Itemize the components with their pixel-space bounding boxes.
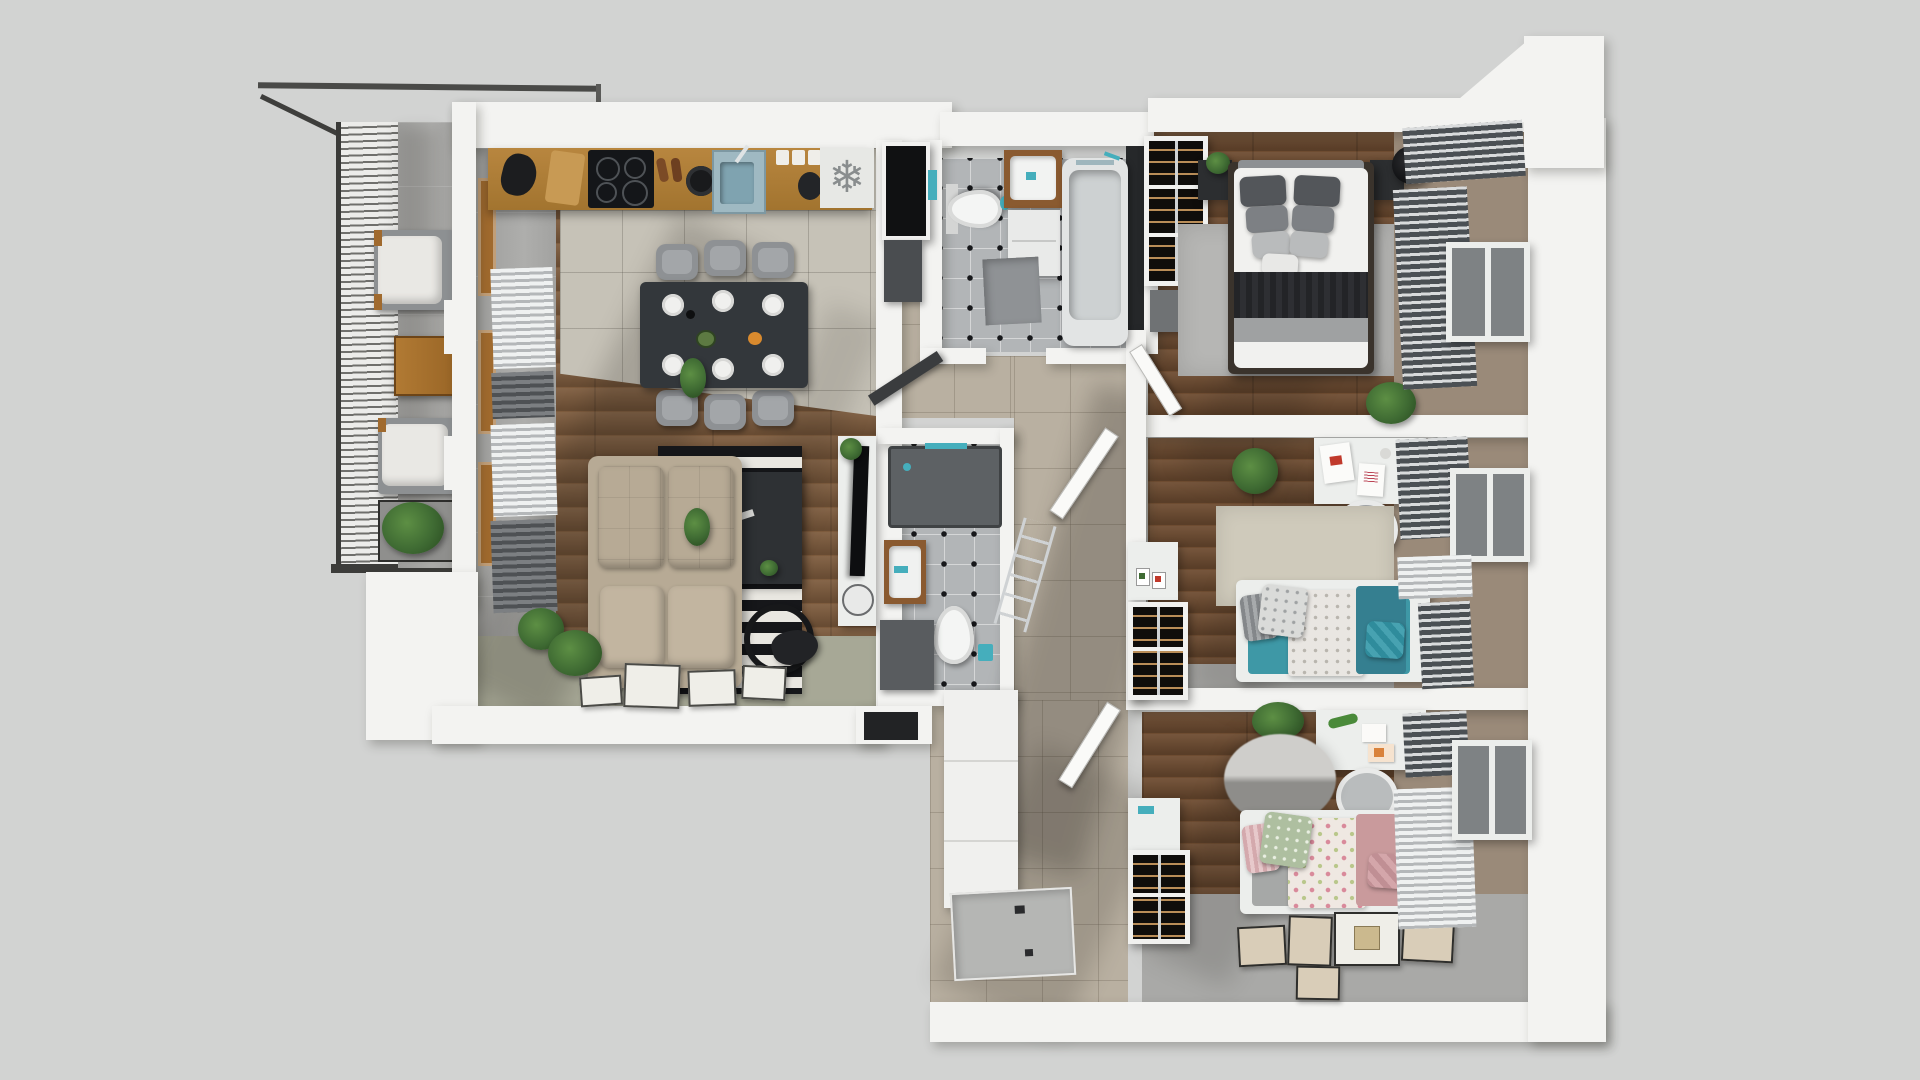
wall-right-band <box>1528 118 1606 1042</box>
wall-shower-top <box>878 428 1014 444</box>
blanket-gray <box>1234 318 1368 342</box>
console-plant <box>840 438 862 460</box>
floor-plan-render: ❄ <box>0 0 1920 1080</box>
place-setting <box>762 294 784 316</box>
shower-vanity <box>884 540 926 604</box>
dining-chair <box>704 394 746 430</box>
toy-lizard-green <box>1327 713 1359 730</box>
pillow-teal-diamond <box>1365 621 1405 660</box>
wall-south-living <box>432 706 884 744</box>
blanket-black-knit <box>1234 272 1368 318</box>
cutting-board <box>545 150 586 206</box>
shower-fixture-teal <box>925 443 967 449</box>
kettle <box>798 172 822 200</box>
bath-mat <box>982 257 1041 326</box>
mug <box>1380 448 1391 459</box>
floor-frame <box>579 675 623 708</box>
tv <box>850 446 870 576</box>
towel-teal <box>928 170 937 200</box>
kitchen-sink <box>712 150 766 214</box>
dining-chair <box>752 242 794 278</box>
poster-red-mark <box>1329 455 1342 466</box>
snowflake-icon: ❄ <box>829 156 866 200</box>
entrance-mat <box>950 887 1076 981</box>
hall-closet <box>944 690 1018 908</box>
floor-frame <box>687 669 736 707</box>
vanity-wood <box>1004 150 1062 208</box>
soap-teal <box>1026 172 1036 180</box>
burner <box>622 180 648 206</box>
shower-tray <box>888 446 1002 528</box>
kidsroom2-shelf-top <box>1128 798 1180 850</box>
table-plant <box>760 560 778 576</box>
balcony-railing-left <box>260 94 348 141</box>
window-blinds <box>490 423 557 517</box>
door-hardware <box>1015 905 1025 914</box>
pillow-star-white <box>1257 583 1309 638</box>
floor-art-frame <box>1334 912 1400 966</box>
window-blinds <box>490 267 555 369</box>
bench-niche <box>864 712 918 740</box>
floor-frame <box>623 663 681 709</box>
photo-card <box>1362 724 1386 742</box>
soap-teal <box>894 566 908 573</box>
teal-detail <box>1138 806 1154 814</box>
art-motif <box>1354 926 1380 950</box>
tv-console <box>838 436 876 626</box>
fern-small <box>680 358 706 398</box>
bath-dark-band <box>1126 146 1146 352</box>
storage-bench <box>880 620 934 690</box>
pillow-dark <box>1293 175 1341 207</box>
floor-art-frame <box>1237 925 1287 967</box>
place-setting <box>712 290 734 312</box>
wall-topright-block <box>1524 36 1604 168</box>
sofa-seat-cushion <box>668 586 734 668</box>
dining-chair <box>704 240 746 276</box>
card-text-lines <box>1364 472 1379 483</box>
dining-chair <box>752 390 794 426</box>
serving-dish-green <box>696 330 716 348</box>
wall-topright-slant <box>1432 40 1528 122</box>
utility-shelf <box>884 240 922 302</box>
place-setting <box>762 354 784 376</box>
wall-bedroom-kids1 <box>1146 415 1538 437</box>
kidsroom1-radiator <box>1397 555 1472 600</box>
dining-table <box>640 282 808 388</box>
wall-top-bath <box>940 112 1154 146</box>
floor-art-frame <box>1296 966 1341 1001</box>
place-setting <box>712 358 734 380</box>
balcony-railing-top <box>258 82 600 92</box>
mini-print-dot <box>1155 576 1161 582</box>
sofa-seat-cushion <box>600 586 664 668</box>
wall-sill <box>444 436 454 490</box>
window-glass <box>1495 746 1526 834</box>
wall-west <box>452 102 476 606</box>
induction-hob <box>588 150 654 208</box>
bath-faucet <box>1076 160 1114 165</box>
dining-chair <box>656 244 698 280</box>
radiator <box>491 371 555 419</box>
shower-drain-teal <box>903 463 911 471</box>
kidsroom1-plant <box>1232 448 1278 494</box>
chair-wood-post <box>378 418 386 432</box>
floor-frame <box>741 665 787 701</box>
burner <box>596 157 620 181</box>
window-glass <box>1458 746 1489 834</box>
burner <box>624 157 646 179</box>
serving-dish-orange <box>748 332 762 345</box>
window-glass <box>1452 248 1485 336</box>
chair-cushion <box>378 236 442 304</box>
record-player <box>842 584 874 616</box>
window-glass <box>1491 248 1524 336</box>
nightstand-plant <box>1206 152 1230 174</box>
pillow-sage-dotted <box>1259 811 1314 869</box>
bedroom-upper-blinds <box>1402 120 1526 184</box>
pillow-gray <box>1245 205 1289 234</box>
kidsroom1-rack <box>1128 602 1188 700</box>
kidsroom2-rack <box>1128 850 1190 944</box>
chair-wood-post <box>374 294 382 310</box>
burner <box>596 182 617 203</box>
pillow-light <box>1289 230 1329 258</box>
mini-print-dot <box>1139 573 1145 579</box>
floor-art-frame <box>1287 915 1333 967</box>
door-hardware <box>1025 949 1033 956</box>
bottle <box>686 310 695 319</box>
balcony-shrub <box>382 502 444 554</box>
bin-teal <box>978 644 993 661</box>
canister <box>792 150 805 165</box>
lounge-chair-1 <box>374 230 454 310</box>
bedroom-window-frame <box>1446 242 1530 342</box>
photo-accent <box>1374 748 1384 757</box>
pillow-dark <box>1239 175 1287 207</box>
fern-small <box>684 508 710 546</box>
fridge-marker: ❄ <box>820 148 874 208</box>
utility-cabinet <box>882 142 930 240</box>
place-setting <box>662 294 684 316</box>
window-glass <box>1493 474 1524 556</box>
sofa-back-cushion <box>598 466 664 568</box>
kidsroom2-window-frame <box>1452 740 1532 840</box>
wall-south-east <box>930 1002 1606 1042</box>
kidsroom1-window-frame <box>1450 468 1530 562</box>
bathtub-inner <box>1069 170 1121 320</box>
radiator <box>490 519 557 613</box>
chair-wood-post <box>374 230 382 246</box>
bathtub <box>1062 158 1128 346</box>
wall-sill <box>444 300 454 354</box>
window-glass <box>1456 474 1487 556</box>
sink-basin <box>720 162 754 204</box>
canister <box>776 150 789 165</box>
pillow-gray <box>1291 205 1335 234</box>
kidsroom1-shelf-top <box>1128 542 1178 600</box>
kidsroom1-blinds-low <box>1418 601 1474 690</box>
chair-cushion <box>382 424 448 486</box>
fern <box>548 630 602 676</box>
